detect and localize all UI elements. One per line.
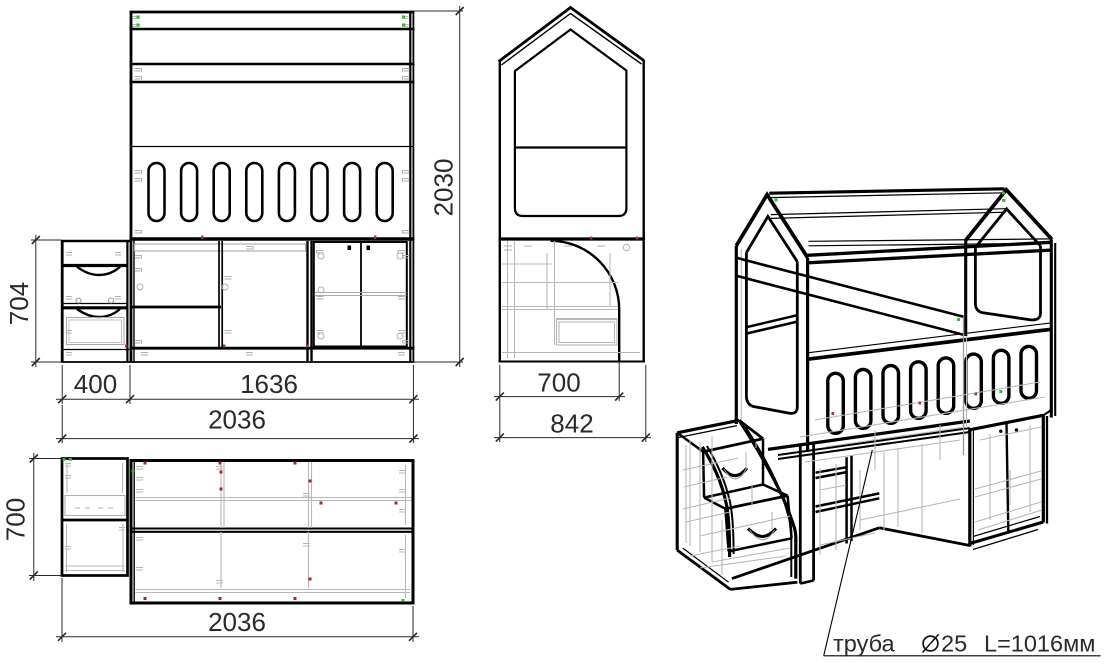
svg-text:25: 25	[941, 631, 967, 657]
svg-text:труба: труба	[833, 631, 896, 657]
svg-text:L=1016мм: L=1016мм	[984, 631, 1095, 657]
svg-text:700: 700	[1, 498, 31, 541]
svg-text:704: 704	[4, 282, 34, 325]
svg-text:1636: 1636	[240, 369, 298, 399]
svg-text:842: 842	[550, 409, 593, 439]
svg-text:700: 700	[537, 368, 580, 398]
svg-text:2036: 2036	[208, 405, 266, 435]
svg-text:2036: 2036	[208, 607, 266, 637]
svg-text:400: 400	[74, 369, 117, 399]
svg-text:2030: 2030	[429, 159, 459, 217]
